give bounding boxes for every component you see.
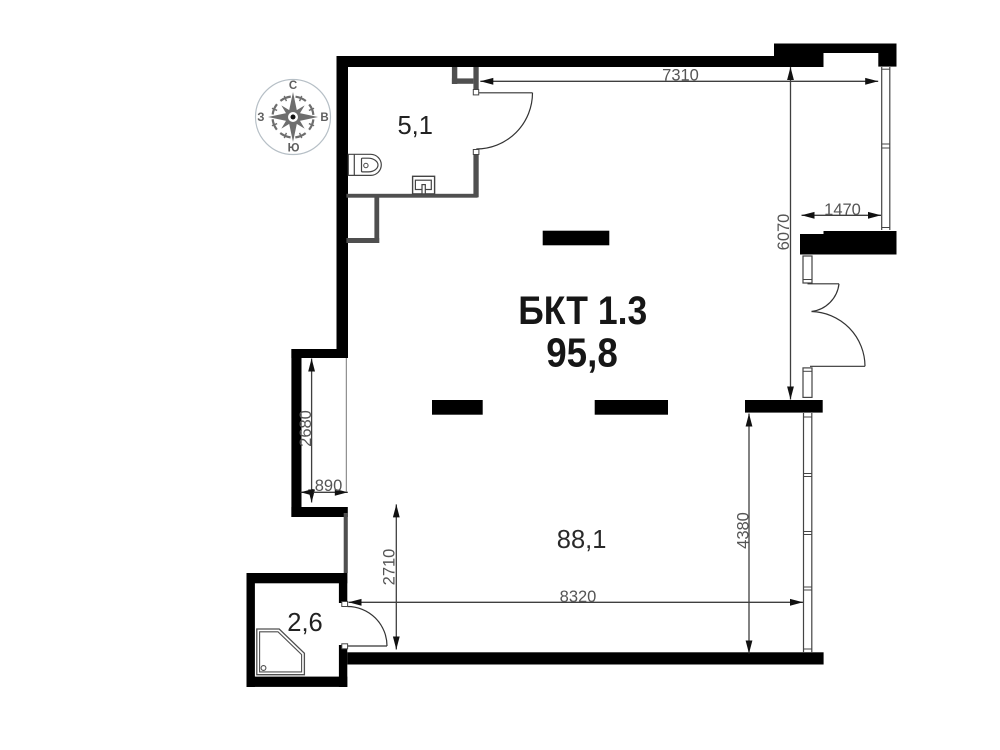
svg-text:2,6: 2,6 — [287, 609, 322, 637]
svg-text:З: З — [257, 112, 264, 124]
svg-text:5,1: 5,1 — [397, 112, 432, 140]
svg-text:4380: 4380 — [735, 512, 753, 549]
svg-text:88,1: 88,1 — [557, 526, 607, 554]
svg-text:95,8: 95,8 — [546, 330, 618, 376]
svg-text:6070: 6070 — [775, 214, 793, 251]
svg-text:8320: 8320 — [560, 588, 597, 606]
svg-text:С: С — [289, 80, 297, 92]
svg-text:2680: 2680 — [297, 410, 315, 447]
svg-text:БКТ 1.3: БКТ 1.3 — [518, 289, 647, 333]
svg-text:890: 890 — [315, 477, 343, 495]
svg-text:1470: 1470 — [824, 201, 861, 219]
svg-text:Ю: Ю — [288, 142, 300, 154]
svg-text:7310: 7310 — [662, 67, 699, 85]
svg-text:2710: 2710 — [380, 549, 398, 586]
svg-text:В: В — [320, 112, 328, 124]
